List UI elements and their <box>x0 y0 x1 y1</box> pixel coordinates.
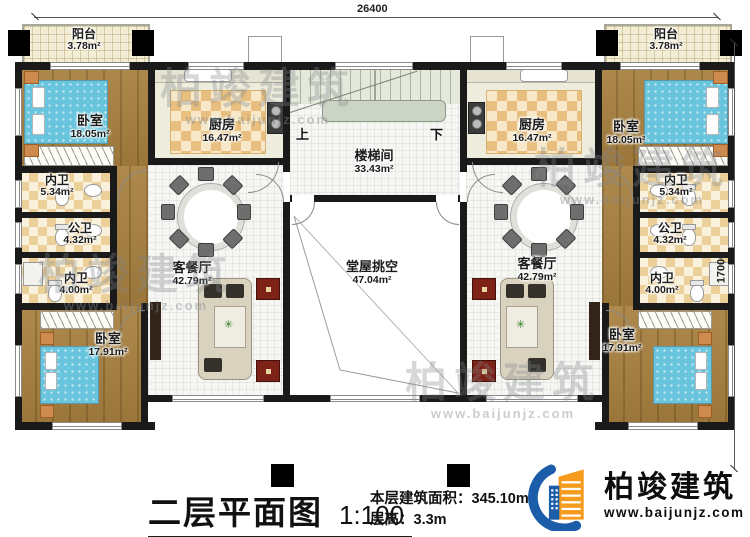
dining-chair <box>198 167 214 181</box>
room-label-shared-bath-left: 公卫 4.32m² <box>63 222 96 247</box>
nightstand <box>24 144 39 157</box>
room-label-hall-void: 堂屋挑空 47.04m² <box>346 260 398 286</box>
pillow <box>45 352 57 370</box>
dimension-top-value: 26400 <box>357 3 388 15</box>
window <box>620 62 700 70</box>
window <box>172 395 264 402</box>
floor-plan-canvas: 26400 17000 上 下 <box>0 0 750 537</box>
wall-segment <box>633 166 735 173</box>
window <box>15 345 22 397</box>
logo-website: www.baijunjz.com <box>604 505 745 520</box>
window <box>15 88 22 136</box>
wall-segment <box>633 303 735 310</box>
window <box>335 62 413 70</box>
column <box>8 30 30 56</box>
plant: ✳ <box>224 320 233 331</box>
window <box>52 422 122 430</box>
wall-segment <box>110 166 117 310</box>
column <box>271 464 294 487</box>
wall-segment <box>460 202 467 402</box>
wall-segment <box>15 166 117 173</box>
pillow <box>695 352 707 370</box>
wall-segment <box>15 252 117 258</box>
dining-chair <box>531 167 547 181</box>
room-label-bedroom-rear-left: 卧室 17.91m² <box>88 332 127 358</box>
window <box>628 422 698 430</box>
wall-segment <box>633 166 640 310</box>
pillow <box>45 372 57 390</box>
room-label-ensuite-rear-left: 内卫 4.00m² <box>59 272 92 297</box>
column <box>720 30 742 56</box>
nightstand <box>40 332 54 345</box>
window <box>506 62 562 70</box>
kitchen-sink <box>520 69 568 82</box>
nightstand <box>698 332 712 345</box>
wall-segment <box>595 62 602 165</box>
dimension-right-value: 17000 <box>715 253 727 284</box>
kitchen-sink <box>184 69 232 82</box>
wardrobe <box>638 311 712 329</box>
nightstand <box>40 405 54 418</box>
sofa-cushion <box>226 284 244 298</box>
door-opening <box>292 195 314 202</box>
dimension-top-line <box>34 17 718 18</box>
room-label-ensuite-front-left: 内卫 5.34m² <box>40 174 73 199</box>
room-label-bedroom-front-left: 卧室 18.05m² <box>70 114 109 140</box>
duct-shaft <box>248 36 282 64</box>
floor-height-stat: 层高：3.3m <box>370 510 534 531</box>
room-label-living-right: 客餐厅 42.79m² <box>517 257 556 283</box>
wall-segment <box>633 212 735 218</box>
company-logo: 柏竣建筑 www.baijunjz.com <box>526 461 745 531</box>
toilet <box>690 284 704 302</box>
column <box>447 464 470 487</box>
column <box>132 30 154 56</box>
floor-area-stat: 本层建筑面积：345.10m² <box>370 489 534 510</box>
room-label-stair-hall: 楼梯间 33.43m² <box>354 149 393 175</box>
room-label-shared-bath-right: 公卫 4.32m² <box>653 222 686 247</box>
logo-text: 柏竣建筑 www.baijunjz.com <box>604 472 745 520</box>
duct-shaft <box>470 36 504 64</box>
void-boundary-lines <box>290 202 462 397</box>
room-label-ensuite-rear-right: 内卫 4.00m² <box>645 272 678 297</box>
wall-segment <box>283 202 290 402</box>
wardrobe <box>40 311 114 329</box>
stair-direction-down-label: 下 <box>430 124 443 143</box>
wall-segment <box>15 212 117 218</box>
room-label-ensuite-front-right: 内卫 5.34m² <box>659 174 692 199</box>
dining-chair <box>161 204 175 220</box>
sofa-cushion <box>204 358 222 372</box>
stair-direction-up-label: 上 <box>296 124 309 143</box>
sofa-cushion <box>506 284 524 298</box>
dining-chair <box>494 204 508 220</box>
window <box>50 62 130 70</box>
pillow <box>32 114 45 135</box>
side-table <box>472 278 496 300</box>
window <box>188 62 244 70</box>
pillow <box>706 87 719 108</box>
shower <box>23 262 43 286</box>
tv-cabinet <box>150 302 161 360</box>
dining-chair <box>531 243 547 257</box>
sofa-cushion <box>528 358 546 372</box>
dining-chair <box>237 204 251 220</box>
nightstand <box>24 71 39 84</box>
wall-segment <box>290 195 460 202</box>
pillow <box>695 372 707 390</box>
plant: ✳ <box>516 320 525 331</box>
room-label-bedroom-front-right: 卧室 18.05m² <box>606 120 645 146</box>
dimension-right-line <box>734 42 735 470</box>
side-table <box>256 278 280 300</box>
column <box>596 30 618 56</box>
wall-segment <box>148 62 155 165</box>
room-label-kitchen-left: 厨房 16.47m² <box>202 118 241 144</box>
window <box>330 395 420 402</box>
stove <box>468 102 485 134</box>
stove <box>267 102 284 134</box>
dining-chair <box>198 243 214 257</box>
door-opening <box>436 195 458 202</box>
nightstand <box>713 71 728 84</box>
room-label-kitchen-right: 厨房 16.47m² <box>512 118 551 144</box>
room-label-balcony-right: 阳台 3.78m² <box>649 28 682 53</box>
floor-stats: 本层建筑面积：345.10m² 层高：3.3m <box>370 489 534 531</box>
wall-segment <box>460 62 467 172</box>
pillow <box>706 114 719 135</box>
window <box>15 222 22 248</box>
wall-segment <box>15 303 117 310</box>
stair-landing-rail <box>322 100 446 122</box>
pillow <box>32 87 45 108</box>
nightstand <box>698 405 712 418</box>
dining-chair <box>570 204 584 220</box>
tv-cabinet <box>589 302 600 360</box>
sofa-cushion <box>528 284 546 298</box>
side-table <box>472 360 496 382</box>
room-label-balcony-left: 阳台 3.78m² <box>67 28 100 53</box>
logo-icon <box>526 461 600 531</box>
plan-title: 二层平面图 <box>148 486 323 534</box>
side-table <box>256 360 280 382</box>
room-label-bedroom-rear-right: 卧室 17.91m² <box>602 328 641 354</box>
window <box>15 180 22 208</box>
logo-company-name: 柏竣建筑 <box>604 472 745 504</box>
wall-segment <box>283 62 290 172</box>
window <box>486 395 578 402</box>
window <box>15 264 22 294</box>
nightstand <box>713 144 728 157</box>
room-label-living-left: 客餐厅 42.79m² <box>172 261 211 287</box>
wash-basin <box>84 184 102 197</box>
